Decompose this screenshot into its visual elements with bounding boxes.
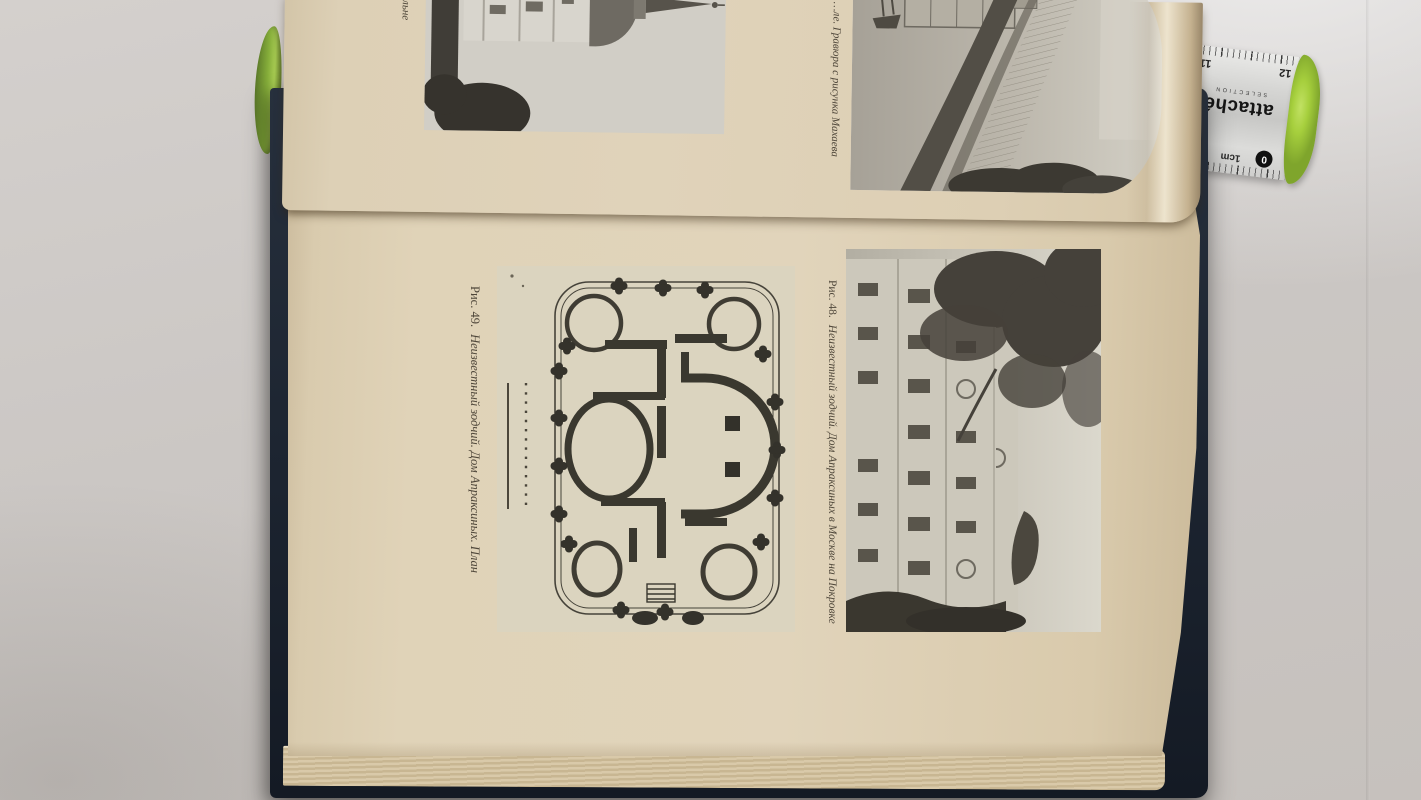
wall-corner-seam xyxy=(1366,0,1370,800)
caption-figure-48-text: Неизвестный зодчий. Дом Апраксиных в Мос… xyxy=(826,325,838,624)
caption-engraving-text: …ле. Гравюра с рисунка Махаева xyxy=(829,2,843,157)
caption-engraving: …ле. Гравюра с рисунка Махаева xyxy=(829,2,843,157)
caption-figure-48: Рис. 48.Неизвестный зодчий. Дом Апраксин… xyxy=(826,280,838,624)
engraving-photo-image xyxy=(850,0,1163,194)
book-upper-page: …ельне xyxy=(282,0,1203,223)
ruler-number-12: 12 xyxy=(1278,66,1292,79)
book-main-page: Рис. 49.Неизвестный зодчий. Дом Апраксин… xyxy=(288,196,1200,756)
ruler-label-1cm: 1cm xyxy=(1220,150,1241,163)
caption-fragment-left-text: …ельне xyxy=(400,0,412,20)
caption-figure-49: Рис. 49.Неизвестный зодчий. Дом Апраксин… xyxy=(467,286,482,573)
engraving-photo xyxy=(850,0,1163,194)
building-photo-figure xyxy=(846,249,1101,632)
caption-figure-49-label: Рис. 49. xyxy=(468,286,482,327)
caption-figure-49-text: Неизвестный зодчий. Дом Апраксиных. План xyxy=(468,334,482,573)
ruler-zero-disc: 0 xyxy=(1255,150,1274,169)
church-photo-image xyxy=(424,0,727,134)
church-photo xyxy=(424,0,727,134)
caption-figure-48-label: Рис. 48. xyxy=(826,280,838,318)
floor-plan-image xyxy=(497,266,795,632)
page-curl xyxy=(1126,2,1203,223)
floor-plan-figure xyxy=(497,266,795,632)
photo-of-open-book: 11 12 attaché SELECTION 2 1cm 0 xyxy=(0,0,1421,800)
caption-fragment-left: …ельне xyxy=(400,0,412,20)
building-photo-image xyxy=(846,249,1101,632)
